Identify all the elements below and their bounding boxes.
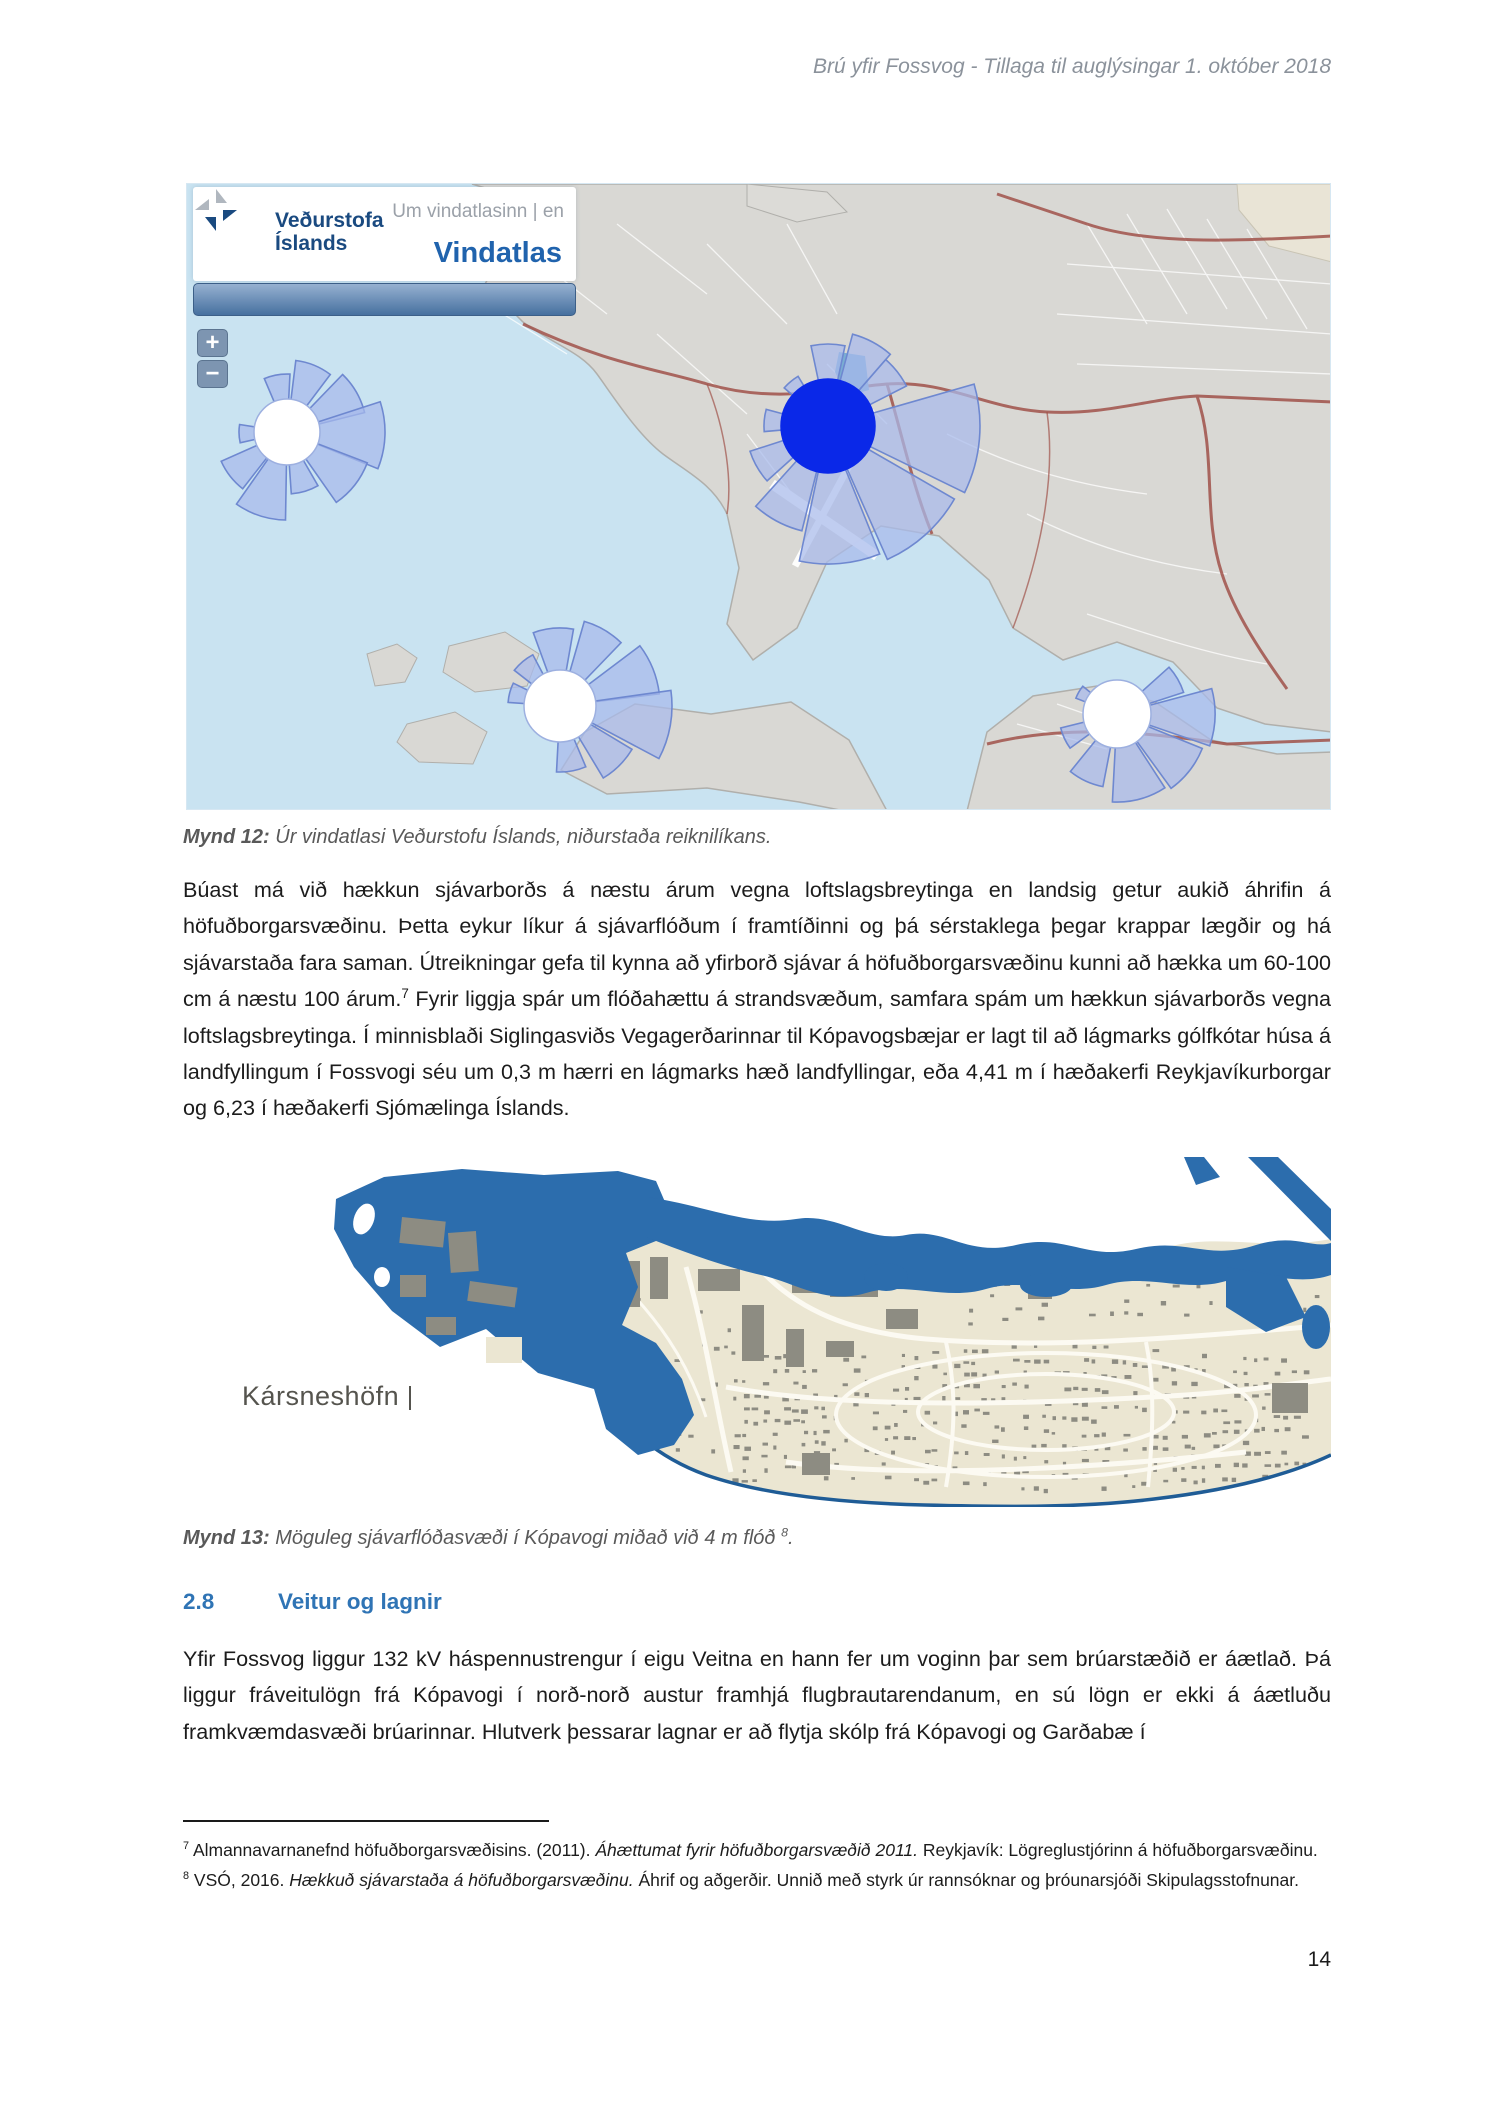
wind-rose-center-selected [781, 379, 875, 473]
page-header: Brú yfir Fossvog - Tillaga til auglýsing… [183, 55, 1331, 79]
vindatlas-site-title: Vindatlas [434, 237, 562, 270]
footnote-ref-7: 7 [401, 986, 408, 1001]
footnote-separator [183, 1820, 549, 1822]
vedurstofa-logo-text: Veðurstofa Íslands [275, 209, 384, 255]
vedurstofa-header-panel: Veðurstofa Íslands Um vindatlasinn | en … [193, 187, 576, 281]
flood-map-figure: Kársneshöfn [186, 1157, 1331, 1507]
footnote-7: 7 Almannavarnanefnd höfuðborgarsvæðisins… [183, 1836, 1331, 1866]
vindatlas-nav-bar [193, 283, 576, 316]
footnote-ref-8: 8 [781, 1525, 788, 1539]
wind-rose-center [1083, 680, 1151, 748]
section-title: Veitur og lagnir [278, 1589, 442, 1614]
figure2-caption: Mynd 13: Möguleg sjávarflóðasvæði í Kópa… [183, 1527, 1331, 1550]
paragraph-sea-level: Búast má við hækkun sjávarborðs á næstu … [183, 872, 1331, 1127]
figure1-caption: Mynd 12: Úr vindatlasi Veðurstofu Ísland… [183, 826, 1331, 849]
footnote-8: 8 VSÓ, 2016. Hækkuð sjávarstaða á höfuðb… [183, 1866, 1331, 1896]
label-leader-tick [409, 1386, 411, 1410]
vindatlas-map-figure: Veðurstofa Íslands Um vindatlasinn | en … [186, 183, 1331, 810]
page-number: 14 [183, 1948, 1331, 1972]
about-windatlas-link[interactable]: Um vindatlasinn | en [392, 201, 564, 223]
map-zoom-out-button[interactable]: − [197, 360, 228, 388]
figure2-caption-label: Mynd 13: [183, 1527, 270, 1549]
footnotes-block: 7 Almannavarnanefnd höfuðborgarsvæðisins… [183, 1836, 1331, 1895]
section-number: 2.8 [183, 1589, 278, 1615]
flood-map-canvas [186, 1157, 1331, 1507]
vedurstofa-pinwheel-logo-icon [193, 187, 239, 233]
map-zoom-in-button[interactable]: + [197, 329, 228, 357]
karsneshofn-label: Kársneshöfn [242, 1381, 411, 1412]
wind-rose-center [524, 670, 596, 742]
figure1-caption-label: Mynd 12: [183, 826, 270, 848]
document-page: Brú yfir Fossvog - Tillaga til auglýsing… [0, 0, 1500, 2122]
wind-rose-center [254, 399, 320, 465]
section-heading-2-8: 2.8Veitur og lagnir [183, 1589, 1331, 1615]
paragraph-utilities: Yfir Fossvog liggur 132 kV háspennustren… [183, 1641, 1331, 1750]
